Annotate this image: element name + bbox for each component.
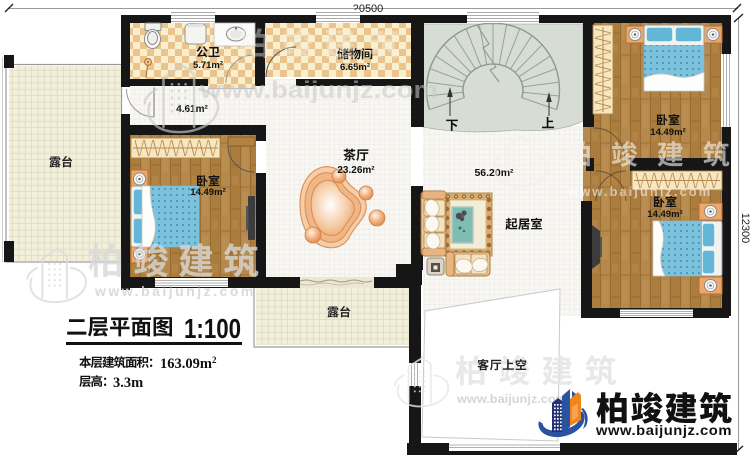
svg-text:6.65m²: 6.65m² xyxy=(340,62,370,73)
svg-text:www.baijunjz.com: www.baijunjz.com xyxy=(456,392,567,406)
svg-text:www.baijunjz.com: www.baijunjz.com xyxy=(567,184,712,199)
svg-text:www.baijunjz.com: www.baijunjz.com xyxy=(595,423,732,438)
svg-text:14.49m²: 14.49m² xyxy=(650,127,685,138)
svg-text:23.26m²: 23.26m² xyxy=(337,165,375,176)
svg-text:3.3m: 3.3m xyxy=(113,375,143,391)
svg-text:163.09m2: 163.09m2 xyxy=(160,355,217,372)
svg-text:12300: 12300 xyxy=(739,213,750,244)
svg-text:www.baijunjz.com: www.baijunjz.com xyxy=(199,77,438,104)
svg-text:14.49m²: 14.49m² xyxy=(647,209,682,220)
svg-text:5.71m²: 5.71m² xyxy=(193,60,223,71)
svg-text:4.61m²: 4.61m² xyxy=(176,104,208,115)
svg-text:14.49m²: 14.49m² xyxy=(190,187,225,198)
svg-text:1:100: 1:100 xyxy=(184,313,241,344)
svg-text:www.baijunjz.com: www.baijunjz.com xyxy=(94,283,256,299)
